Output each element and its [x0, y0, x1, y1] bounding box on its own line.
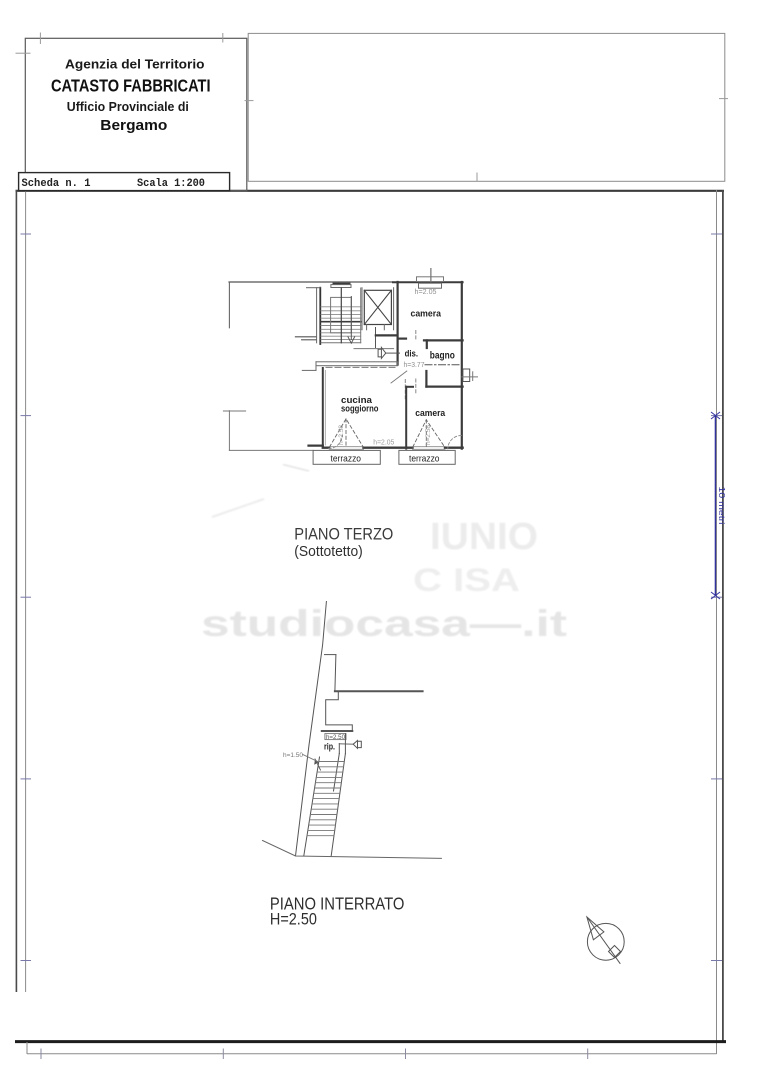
svg-text:CATASTO FABBRICATI: CATASTO FABBRICATI — [51, 76, 211, 96]
svg-text:dis.: dis. — [405, 348, 419, 359]
svg-text:Agenzia del Territorio: Agenzia del Territorio — [65, 57, 205, 72]
svg-text:h=2.05: h=2.05 — [373, 437, 394, 446]
svg-text:h=2.58: h=2.58 — [425, 424, 432, 445]
svg-text:h=2.50: h=2.50 — [326, 734, 346, 741]
svg-text:h=3.77: h=3.77 — [404, 360, 425, 369]
svg-text:IUNIO: IUNIO — [430, 516, 538, 558]
svg-text:camera: camera — [415, 408, 446, 419]
svg-text:studiocasa—.it: studiocasa—.it — [201, 603, 567, 644]
svg-text:rip.: rip. — [324, 741, 335, 751]
svg-text:H=2.50: H=2.50 — [270, 910, 317, 928]
svg-text:Bergamo: Bergamo — [100, 118, 167, 134]
svg-text:h=2.05: h=2.05 — [415, 289, 437, 296]
svg-text:h=1.50: h=1.50 — [283, 752, 303, 759]
svg-text:camera: camera — [411, 307, 442, 318]
svg-text:(Sottotetto): (Sottotetto) — [294, 543, 363, 560]
svg-text:terrazzo: terrazzo — [331, 453, 362, 463]
svg-text:10 metri: 10 metri — [717, 487, 726, 525]
svg-text:soggiorno: soggiorno — [341, 403, 379, 414]
svg-text:terrazzo: terrazzo — [409, 453, 440, 463]
svg-text:C ISA: C ISA — [413, 562, 520, 598]
svg-text:Scala 1:200: Scala 1:200 — [137, 178, 205, 190]
svg-text:bagno: bagno — [430, 351, 455, 362]
svg-text:Ufficio Provinciale di: Ufficio Provinciale di — [67, 99, 189, 114]
svg-text:Scheda n. 1: Scheda n. 1 — [22, 178, 91, 190]
svg-text:PIANO TERZO: PIANO TERZO — [294, 526, 393, 544]
svg-text:h=2.58: h=2.58 — [338, 424, 345, 445]
